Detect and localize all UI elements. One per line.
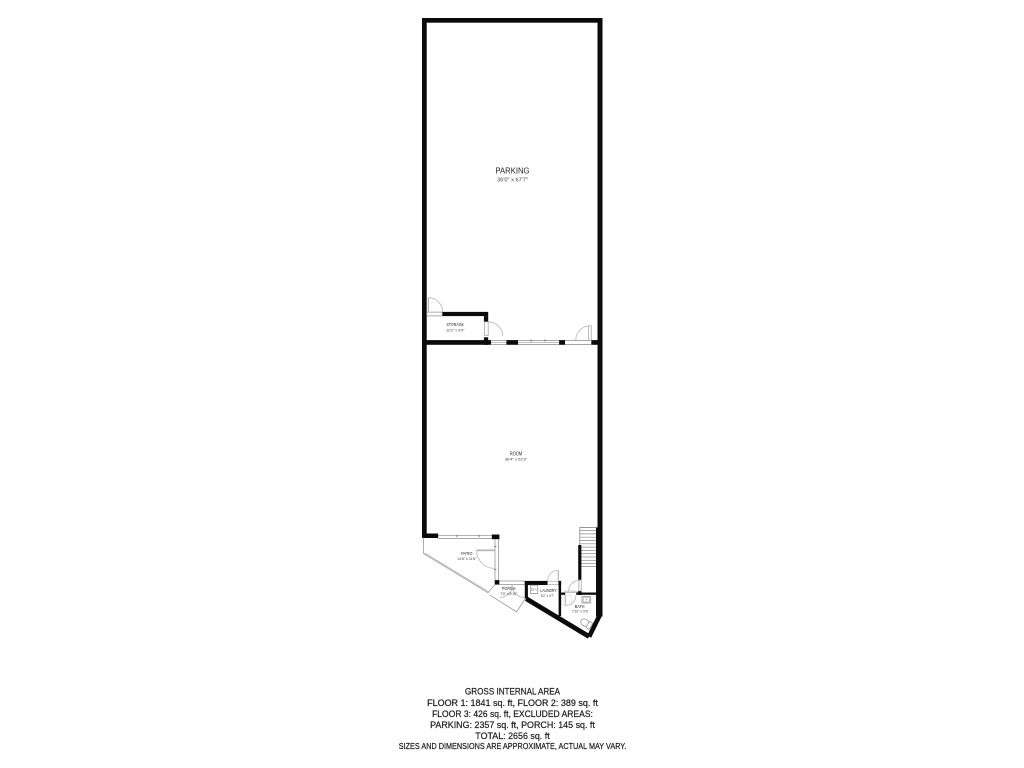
svg-text:TOTAL: 2656 sq. ft: TOTAL: 2656 sq. ft — [475, 731, 550, 741]
svg-text:5'2" x 4'7": 5'2" x 4'7" — [541, 593, 555, 598]
svg-text:7'0" x 8'10": 7'0" x 8'10" — [500, 591, 517, 596]
svg-text:PARKING: PARKING — [496, 167, 530, 176]
svg-text:PARKING: 2357 sq. ft, PORCH: 1: PARKING: 2357 sq. ft, PORCH: 145 sq. ft — [430, 720, 595, 730]
svg-text:SIZES AND DIMENSIONS ARE APPRO: SIZES AND DIMENSIONS ARE APPROXIMATE, AC… — [399, 742, 627, 751]
svg-text:7'10" x 9'3": 7'10" x 9'3" — [572, 609, 589, 614]
svg-text:36'4" x 52'3": 36'4" x 52'3" — [505, 456, 528, 461]
svg-text:FLOOR 3: 426 sq. ft, EXCLUDED: FLOOR 3: 426 sq. ft, EXCLUDED AREAS: — [432, 709, 593, 719]
svg-text:12'2" x 9'9": 12'2" x 9'9" — [446, 327, 465, 332]
svg-text:GROSS INTERNAL AREA: GROSS INTERNAL AREA — [465, 687, 560, 697]
svg-text:14'8" x 11'6": 14'8" x 11'6" — [457, 556, 477, 561]
svg-text:36'0" x 67'7": 36'0" x 67'7" — [497, 178, 528, 184]
svg-text:FLOOR 1: 1841 sq. ft, FLOOR 2:: FLOOR 1: 1841 sq. ft, FLOOR 2: 389 sq. f… — [427, 698, 598, 708]
